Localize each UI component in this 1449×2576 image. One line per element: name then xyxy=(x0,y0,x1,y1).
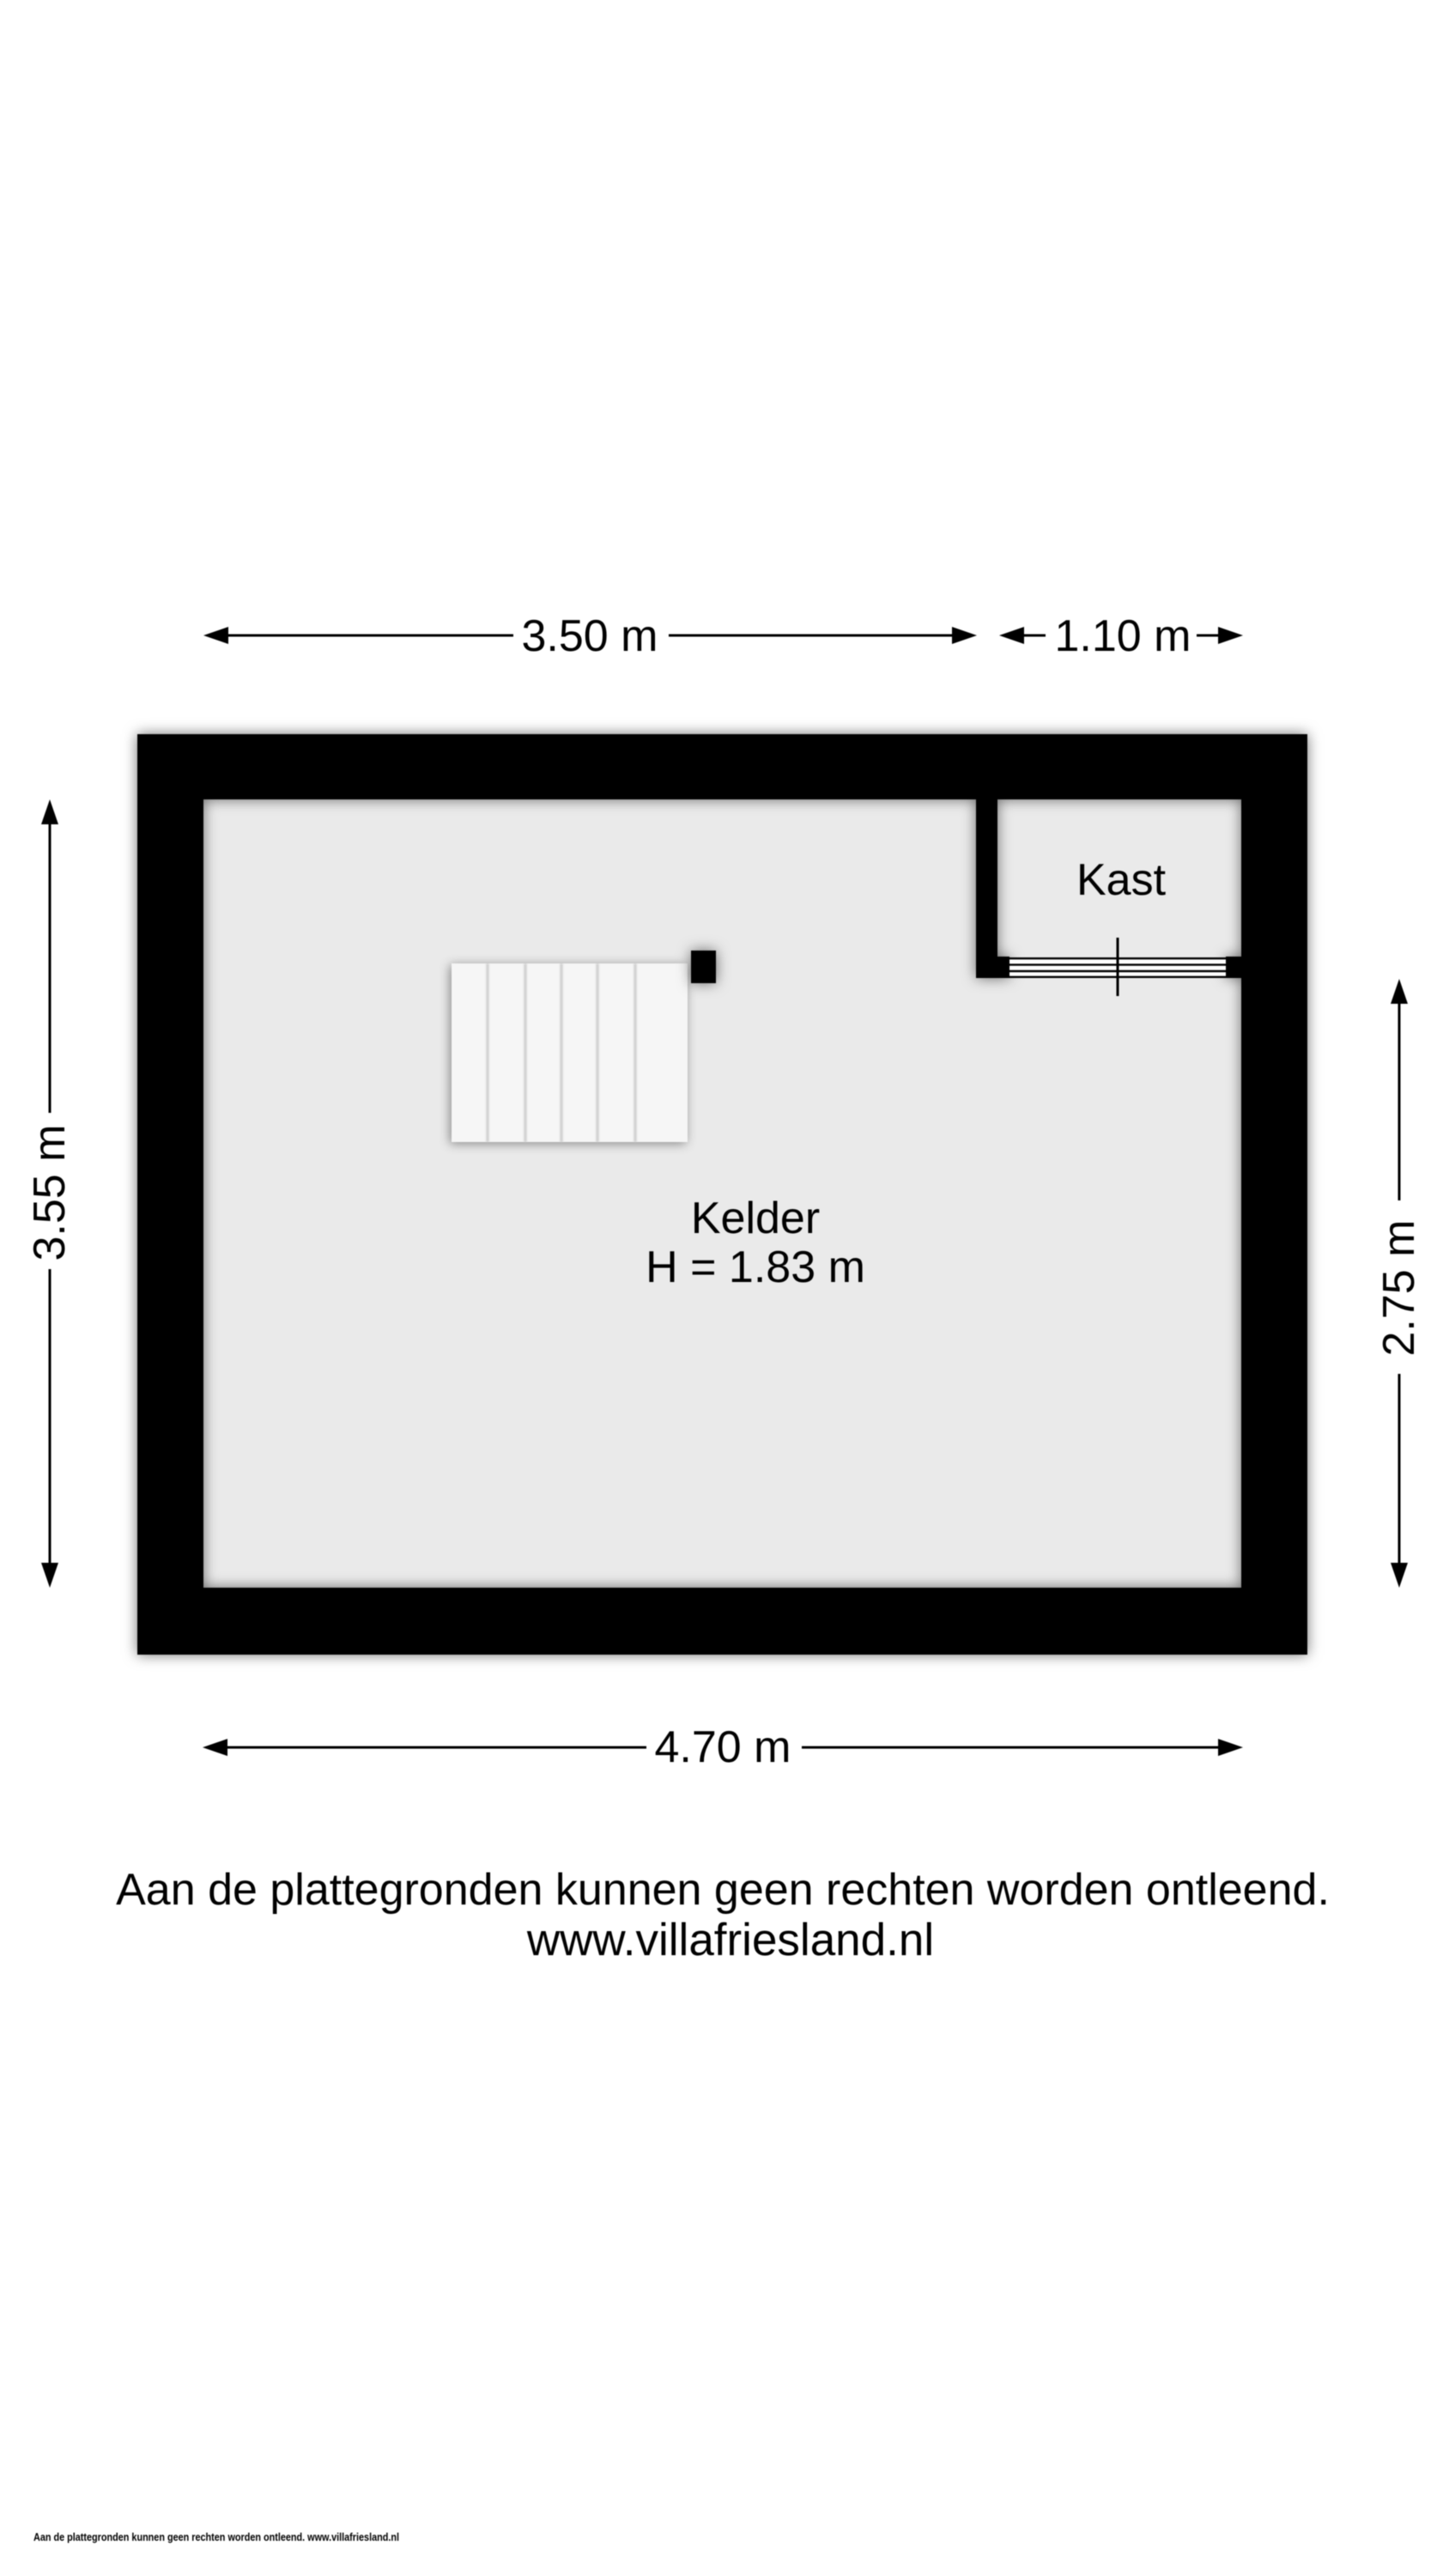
svg-text:Kast: Kast xyxy=(1076,855,1167,905)
svg-text:4.70 m: 4.70 m xyxy=(655,1722,791,1772)
svg-text:Aan de plattegronden kunnen ge: Aan de plattegronden kunnen geen rechten… xyxy=(116,1865,1330,1915)
svg-text:2.75 m: 2.75 m xyxy=(1374,1220,1424,1357)
svg-text:3.55 m: 3.55 m xyxy=(25,1125,75,1261)
svg-text:Kelder: Kelder xyxy=(691,1194,820,1243)
svg-text:www.villafriesland.nl: www.villafriesland.nl xyxy=(526,1915,934,1965)
svg-text:3.50 m: 3.50 m xyxy=(522,611,658,661)
svg-text:Aan de plattegronden kunnen ge: Aan de plattegronden kunnen geen rechten… xyxy=(33,2530,399,2543)
svg-text:1.10 m: 1.10 m xyxy=(1055,611,1191,661)
svg-text:H = 1.83 m: H = 1.83 m xyxy=(646,1242,865,1292)
